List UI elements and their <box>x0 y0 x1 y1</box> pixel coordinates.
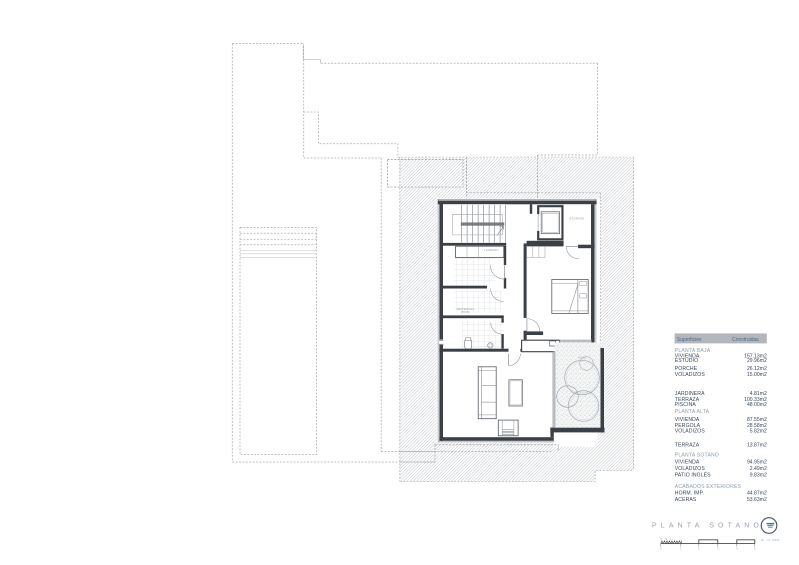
svg-text:LAUNDRY: LAUNDRY <box>484 248 499 252</box>
svg-text:48.00m2: 48.00m2 <box>747 402 767 408</box>
svg-text:VOLADIZOS: VOLADIZOS <box>675 372 706 378</box>
svg-text:VOLADIZOS: VOLADIZOS <box>675 466 706 472</box>
svg-text:ACERAS: ACERAS <box>675 497 697 503</box>
svg-text:PLANTA SOTANO: PLANTA SOTANO <box>652 523 763 530</box>
svg-text:Construidas: Construidas <box>732 337 759 343</box>
svg-text:PATIO INGLÉS: PATIO INGLÉS <box>675 472 711 479</box>
svg-text:53.63m2: 53.63m2 <box>747 497 767 503</box>
svg-text:Superficies: Superficies <box>677 337 702 343</box>
svg-text:ROOM: ROOM <box>461 311 469 314</box>
svg-text:STORAGE: STORAGE <box>569 217 584 221</box>
svg-text:PLANTA ALTA: PLANTA ALTA <box>675 409 710 415</box>
svg-text:ESTUDIO: ESTUDIO <box>675 358 698 364</box>
svg-text:ACABADOS EXTERIORES: ACABADOS EXTERIORES <box>675 484 742 490</box>
svg-text:94.95m2: 94.95m2 <box>747 460 767 466</box>
svg-text:E. 1/ 100: E. 1/ 100 <box>762 538 780 542</box>
svg-text:PLANTA SOTANO: PLANTA SOTANO <box>675 452 719 458</box>
svg-text:PISCINA: PISCINA <box>675 402 697 408</box>
svg-text:5.82m2: 5.82m2 <box>750 429 767 435</box>
svg-text:VOLADIZOS: VOLADIZOS <box>675 429 706 435</box>
svg-text:13.87m2: 13.87m2 <box>747 442 767 448</box>
svg-text:VIVIENDA: VIVIENDA <box>675 460 700 466</box>
svg-text:HORM. IMP.: HORM. IMP. <box>675 491 704 497</box>
svg-text:9.83m2: 9.83m2 <box>750 473 767 479</box>
svg-text:44.87m2: 44.87m2 <box>747 491 767 497</box>
svg-text:2.49m2: 2.49m2 <box>750 466 767 472</box>
svg-text:29.96m2: 29.96m2 <box>747 358 767 364</box>
svg-text:15.00m2: 15.00m2 <box>747 372 767 378</box>
svg-text:TERRAZA: TERRAZA <box>675 442 700 448</box>
svg-text:0 ½ 1: 0 ½ 1 <box>661 537 673 541</box>
